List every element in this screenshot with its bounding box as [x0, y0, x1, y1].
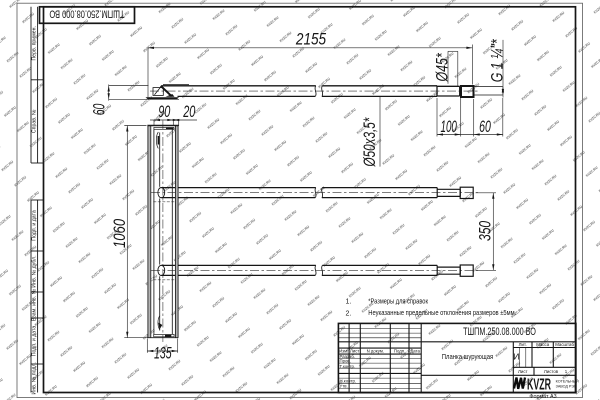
svg-text:100: 100: [440, 116, 457, 136]
svg-text:60: 60: [89, 103, 108, 115]
svg-text:Утв.: Утв.: [340, 384, 348, 389]
svg-text:Инв. № подл.: Инв. № подл.: [31, 362, 37, 394]
svg-text:Изм.: Изм.: [339, 349, 348, 354]
svg-text:1060: 1060: [110, 218, 129, 248]
svg-text:Ø50х3,5*: Ø50х3,5*: [361, 117, 380, 168]
svg-text:Дата: Дата: [410, 349, 420, 354]
svg-text:Лист: Лист: [518, 369, 528, 374]
svg-text:Инв. № дубл.: Инв. № дубл.: [31, 255, 37, 287]
svg-text:Листов: Листов: [544, 369, 559, 374]
svg-text:2155: 2155: [295, 30, 326, 49]
svg-text:*Размеры для справок: *Размеры для справок: [368, 298, 428, 306]
svg-text:ТШПМ.250.08.000 ВО: ТШПМ.250.08.000 ВО: [49, 8, 124, 21]
svg-text:90: 90: [158, 103, 170, 122]
svg-text:Масштаб: Масштаб: [555, 342, 574, 347]
svg-text:Взам. инв. №: Взам. инв. №: [31, 288, 37, 321]
svg-text:135: 135: [154, 343, 172, 362]
svg-text:ТШПМ.250.08.000 ВО: ТШПМ.250.08.000 ВО: [463, 326, 536, 338]
svg-text:ЗАВОД РЭП: ЗАВОД РЭП: [556, 384, 577, 388]
svg-text:350: 350: [477, 220, 495, 241]
svg-text:20: 20: [182, 103, 195, 122]
svg-text:Подп.: Подп.: [394, 349, 405, 354]
svg-text:Перв. примен.: Перв. примен.: [31, 26, 37, 61]
svg-text:2.: 2.: [346, 311, 352, 318]
svg-text:Т.контр.: Т.контр.: [340, 364, 356, 369]
svg-text:Формат А3: Формат А3: [529, 394, 556, 400]
svg-text:1.: 1.: [346, 299, 352, 306]
svg-text:КОТЕЛЬНЫЙ: КОТЕЛЬНЫЙ: [556, 379, 579, 383]
svg-text:И: И: [513, 352, 519, 362]
svg-text:G 1 ¼"*: G 1 ¼"*: [489, 38, 507, 82]
svg-text:Планка шурующая: Планка шурующая: [442, 354, 494, 362]
svg-text:N докум.: N докум.: [367, 349, 384, 354]
svg-text:Лист: Лист: [350, 349, 359, 354]
svg-text:Справ. №: Справ. №: [31, 109, 37, 133]
svg-text:Подп. и дата: Подп. и дата: [31, 326, 37, 357]
svg-text:Неуказанные предельные отклоне: Неуказанные предельные отклонения размер…: [368, 310, 516, 318]
svg-text:KVZR: KVZR: [527, 376, 551, 393]
svg-text:Ø45*: Ø45*: [434, 52, 452, 82]
svg-text:60: 60: [479, 116, 491, 135]
svg-text:Лит.: Лит.: [519, 342, 527, 347]
svg-text:Подп. и дата: Подп. и дата: [31, 210, 37, 241]
svg-text:Масса: Масса: [536, 342, 550, 347]
